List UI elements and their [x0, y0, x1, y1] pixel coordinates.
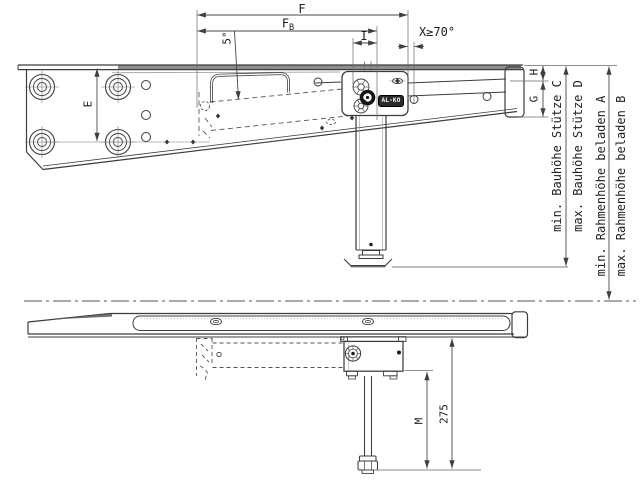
- dim-label-5deg: 5°: [222, 31, 233, 44]
- drawing-linework: [0, 0, 640, 482]
- dim-label-x-angle: X≥70°: [419, 26, 455, 38]
- frame-hole: [314, 78, 322, 86]
- height-dim-label-c: min. Bauhöhe Stütze C: [551, 80, 563, 232]
- bottom-view-gearbox: [341, 337, 407, 379]
- dim-label-g: G: [529, 96, 540, 103]
- dim-label-m: M: [414, 418, 425, 425]
- dim-label-fb: FB: [282, 18, 294, 33]
- dim-label-i: I: [360, 30, 367, 42]
- dim-label-275: 275: [439, 404, 450, 424]
- small-pin: [217, 352, 221, 356]
- alko-brand-badge: AL-KO: [378, 95, 404, 107]
- beam-slot: [211, 318, 222, 324]
- mounting-bolts: [25, 71, 354, 158]
- bolt: [101, 71, 135, 103]
- height-dim-label-b: max. Rahmenhöhe beladen B: [615, 96, 627, 277]
- top-view-frame: [18, 65, 524, 170]
- dim-label-h: H: [529, 69, 540, 76]
- bottom-view-beam: [28, 312, 528, 338]
- crank-handle: [212, 74, 289, 103]
- hidden-crank-stowed: [197, 338, 345, 382]
- hidden-crank-rod: [199, 89, 352, 138]
- beam-slot: [363, 318, 374, 324]
- bolt: [25, 71, 59, 103]
- height-dim-label-d: max. Bauhöhe Stütze D: [572, 80, 584, 232]
- support-leg: [344, 116, 392, 267]
- spindle: [358, 376, 378, 473]
- dim-label-f: F: [298, 3, 305, 15]
- dim-label-fb-sub: B: [289, 23, 294, 33]
- hex-nut: [358, 461, 378, 470]
- height-dim-label-a: min. Rahmenhöhe beladen A: [595, 96, 607, 277]
- frame-hole: [483, 93, 491, 101]
- foot-plate: [344, 259, 392, 266]
- dim-label-e: E: [83, 101, 94, 108]
- technical-drawing: F FB I X≥70° 5° E H G min. Bauhöhe Stütz…: [0, 0, 640, 482]
